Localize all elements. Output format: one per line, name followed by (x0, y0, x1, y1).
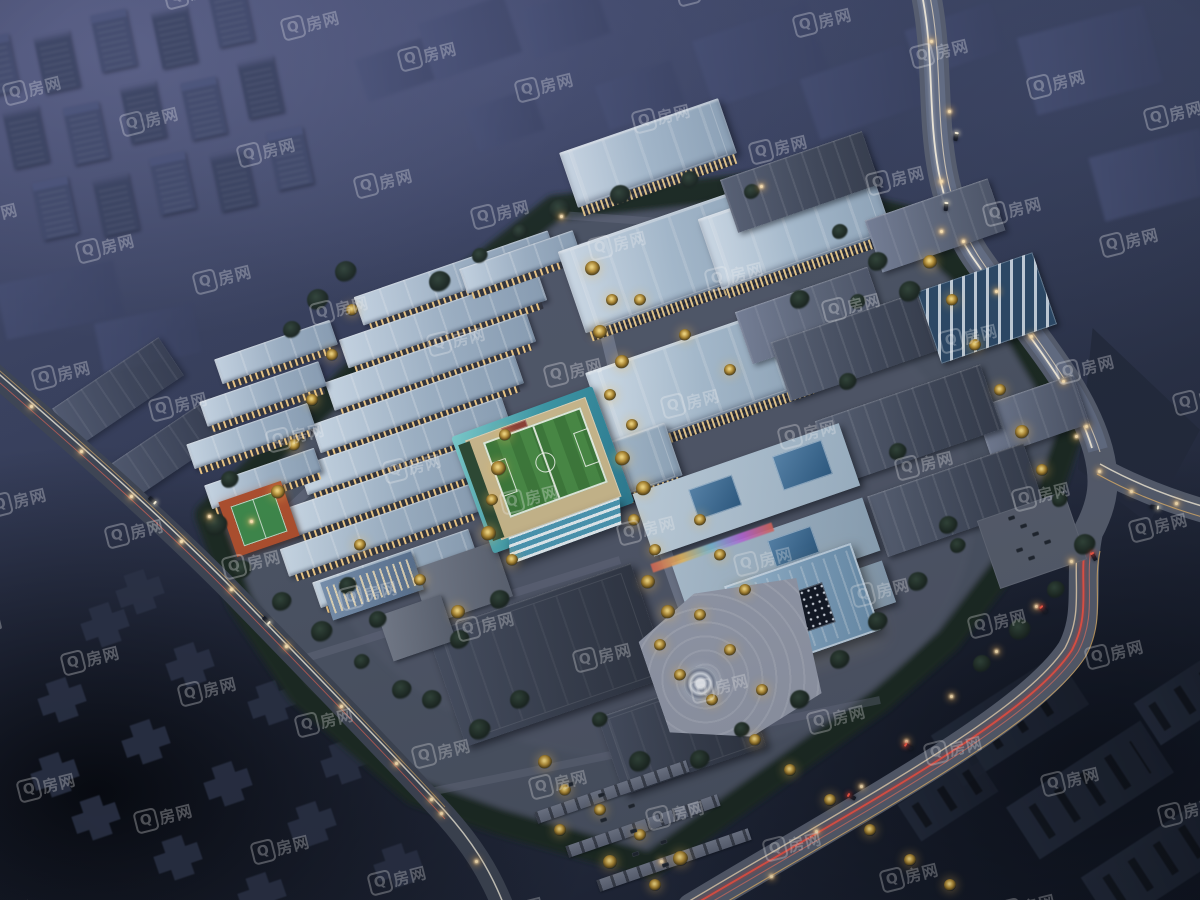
watermark-text: 房网 (961, 317, 1000, 349)
watermark-text: 房网 (332, 289, 371, 321)
watermark-text: 房网 (1180, 791, 1200, 823)
watermark-text: 房网 (902, 856, 941, 888)
watermark-text: 房网 (917, 444, 956, 476)
watermark-text: 房网 (1019, 887, 1058, 900)
watermark: Q房网 (1025, 63, 1088, 101)
watermark-text: 房网 (522, 478, 561, 510)
watermark-text: 房网 (844, 286, 883, 318)
watermark-text: 房网 (10, 481, 49, 513)
watermark: Q房网 (147, 385, 210, 423)
watermark: Q房网 (864, 159, 927, 197)
watermark-text: 房网 (54, 354, 93, 386)
watermark: Q房网 (220, 543, 283, 581)
watermark-logo-icon: Q (1171, 388, 1199, 416)
watermark-logo-icon: Q (688, 676, 716, 704)
watermark: Q房网 (59, 639, 122, 677)
watermark-text: 房网 (595, 636, 634, 668)
watermark-logo-icon: Q (761, 834, 789, 862)
watermark-text: 房网 (478, 605, 517, 637)
watermark: Q房网 (937, 317, 1000, 355)
watermark: Q房网 (352, 162, 415, 200)
watermark-text: 房网 (303, 4, 342, 36)
watermark: Q房网 (688, 667, 751, 705)
watermark-text: 房网 (186, 0, 225, 5)
watermark-logo-icon: Q (776, 422, 804, 450)
watermark: Q房网 (571, 636, 634, 674)
watermark: Q房网 (586, 224, 649, 262)
watermark-logo-icon: Q (1127, 515, 1155, 543)
watermark-text: 房网 (668, 794, 707, 826)
watermark: Q房网 (1171, 379, 1200, 417)
watermark-text: 房网 (25, 69, 64, 101)
watermark-logo-icon: Q (1054, 357, 1082, 385)
watermark-text: 房网 (39, 766, 78, 798)
watermark: Q房网 (469, 193, 532, 231)
watermark-logo-icon: Q (454, 614, 482, 642)
watermark-logo-icon: Q (1098, 230, 1126, 258)
watermark: Q房网 (1054, 348, 1117, 386)
watermark: Q房网 (249, 828, 312, 866)
watermark-text: 房网 (1122, 221, 1161, 253)
watermark-logo-icon: Q (469, 202, 497, 230)
watermark-text: 房网 (127, 512, 166, 544)
watermark: Q房网 (761, 825, 824, 863)
watermark-text: 房网 (1078, 348, 1117, 380)
watermark-logo-icon: Q (74, 236, 102, 264)
watermark-logo-icon: Q (981, 199, 1009, 227)
watermark-logo-icon: Q (864, 168, 892, 196)
watermark: Q房网 (674, 0, 737, 8)
watermark-text: 房网 (727, 255, 766, 287)
watermark-logo-icon: Q (220, 552, 248, 580)
watermark: Q房网 (893, 444, 956, 482)
watermark-logo-icon: Q (176, 679, 204, 707)
watermark-logo-icon: Q (805, 707, 833, 735)
watermark-text: 房网 (785, 825, 824, 857)
watermark-text: 房网 (259, 131, 298, 163)
watermark-logo-icon: Q (191, 267, 219, 295)
watermark: Q房网 (0, 608, 5, 646)
watermark: Q房网 (644, 794, 707, 832)
watermark: Q房网 (15, 766, 78, 804)
watermark-text: 房网 (683, 382, 722, 414)
watermark-logo-icon: Q (162, 0, 190, 10)
watermark-logo-icon: Q (878, 865, 906, 893)
watermark-logo-icon: Q (586, 233, 614, 261)
watermark-logo-icon: Q (1039, 769, 1067, 797)
watermark: Q房网 (1156, 791, 1200, 829)
watermark-text: 房网 (1034, 475, 1073, 507)
watermark-logo-icon: Q (30, 363, 58, 391)
watermark: Q房网 (849, 571, 912, 609)
watermark: Q房网 (542, 351, 605, 389)
watermark: Q房网 (381, 447, 444, 485)
watermark: Q房网 (922, 729, 985, 767)
watermark-logo-icon: Q (103, 521, 131, 549)
watermark: Q房网 (1098, 221, 1161, 259)
watermark: Q房网 (118, 100, 181, 138)
watermark: Q房网 (732, 540, 795, 578)
watermark-logo-icon: Q (337, 583, 365, 611)
watermark-text: 房网 (273, 828, 312, 860)
watermark-logo-icon: Q (132, 806, 160, 834)
watermark-text: 房网 (771, 128, 810, 160)
watermark: Q房网 (74, 227, 137, 265)
watermark-text: 房网 (0, 196, 20, 228)
watermark-logo-icon: Q (732, 549, 760, 577)
watermark: Q房网 (805, 698, 868, 736)
watermark-text: 房网 (932, 32, 971, 64)
watermark-logo-icon: Q (571, 645, 599, 673)
watermark-logo-icon: Q (937, 326, 965, 354)
watermark-layer: Q房网Q房网Q房网Q房网Q房网Q房网Q房网Q房网Q房网Q房网Q房网Q房网Q房网Q… (0, 0, 1200, 900)
watermark: Q房网 (703, 255, 766, 293)
watermark-logo-icon: Q (15, 775, 43, 803)
watermark-logo-icon: Q (849, 580, 877, 608)
watermark-text: 房网 (698, 0, 737, 2)
watermark-logo-icon: Q (1, 78, 29, 106)
watermark: Q房网 (1127, 506, 1190, 544)
watermark: Q房网 (0, 893, 34, 900)
watermark-logo-icon: Q (922, 738, 950, 766)
watermark: Q房网 (981, 190, 1044, 228)
watermark: Q房网 (0, 481, 49, 519)
watermark-logo-icon: Q (1025, 72, 1053, 100)
watermark-text: 房网 (537, 66, 576, 98)
aerial-night-rendering: Q房网Q房网Q房网Q房网Q房网Q房网Q房网Q房网Q房网Q房网Q房网Q房网Q房网Q… (0, 0, 1200, 900)
watermark-logo-icon: Q (1010, 484, 1038, 512)
watermark-logo-icon: Q (264, 425, 292, 453)
watermark-text: 房网 (946, 729, 985, 761)
watermark-text: 房网 (376, 162, 415, 194)
watermark: Q房网 (425, 320, 488, 358)
watermark-text: 房网 (244, 543, 283, 575)
watermark-text: 房网 (800, 413, 839, 445)
watermark-text: 房网 (712, 667, 751, 699)
watermark-logo-icon: Q (352, 171, 380, 199)
watermark: Q房网 (308, 289, 371, 327)
watermark-text: 房网 (171, 385, 210, 417)
watermark-text: 房网 (142, 100, 181, 132)
watermark: Q房网 (176, 670, 239, 708)
watermark-logo-icon: Q (293, 710, 321, 738)
watermark-logo-icon: Q (747, 137, 775, 165)
watermark-text: 房网 (317, 701, 356, 733)
watermark: Q房网 (776, 413, 839, 451)
watermark-logo-icon: Q (703, 264, 731, 292)
watermark-text: 房网 (551, 763, 590, 795)
watermark-logo-icon: Q (630, 106, 658, 134)
watermark: Q房网 (615, 509, 678, 547)
watermark: Q房网 (30, 354, 93, 392)
watermark-text: 房网 (361, 574, 400, 606)
watermark: Q房网 (995, 887, 1058, 900)
watermark-logo-icon: Q (674, 0, 702, 7)
watermark-text: 房网 (83, 639, 122, 671)
watermark-text: 房网 (405, 447, 444, 479)
watermark-text: 房网 (0, 608, 5, 640)
watermark-text: 房网 (990, 602, 1029, 634)
watermark: Q房网 (279, 4, 342, 42)
watermark: Q房网 (1142, 94, 1200, 132)
watermark-logo-icon: Q (279, 13, 307, 41)
watermark-logo-icon: Q (381, 456, 409, 484)
watermark-text: 房网 (639, 509, 678, 541)
watermark-text: 房网 (1107, 633, 1146, 665)
watermark-text: 房网 (200, 670, 239, 702)
watermark-text: 房网 (1151, 506, 1190, 538)
watermark-text: 房网 (420, 35, 459, 67)
watermark: Q房网 (396, 35, 459, 73)
watermark-text: 房网 (288, 416, 327, 448)
watermark-logo-icon: Q (791, 10, 819, 38)
watermark-text: 房网 (815, 1, 854, 33)
watermark-text: 房网 (756, 540, 795, 572)
watermark-text: 房网 (449, 320, 488, 352)
watermark-logo-icon: Q (513, 75, 541, 103)
watermark: Q房网 (366, 859, 429, 897)
watermark-logo-icon: Q (235, 140, 263, 168)
watermark-text: 房网 (654, 97, 693, 129)
watermark-logo-icon: Q (908, 41, 936, 69)
watermark-text: 房网 (0, 893, 34, 900)
watermark-logo-icon: Q (644, 803, 672, 831)
watermark: Q房网 (0, 196, 20, 234)
watermark: Q房网 (337, 574, 400, 612)
watermark: Q房网 (483, 890, 546, 900)
watermark-text: 房网 (434, 732, 473, 764)
watermark-logo-icon: Q (425, 329, 453, 357)
watermark-logo-icon: Q (542, 360, 570, 388)
watermark-logo-icon: Q (366, 868, 394, 896)
watermark-logo-icon: Q (1156, 800, 1184, 828)
watermark-text: 房网 (888, 159, 927, 191)
watermark-logo-icon: Q (615, 518, 643, 546)
watermark: Q房网 (1039, 760, 1102, 798)
watermark: Q房网 (630, 97, 693, 135)
watermark: Q房网 (1083, 633, 1146, 671)
watermark: Q房网 (1010, 475, 1073, 513)
watermark-text: 房网 (493, 193, 532, 225)
watermark-text: 房网 (507, 890, 546, 900)
watermark-logo-icon: Q (59, 648, 87, 676)
watermark-text: 房网 (1005, 190, 1044, 222)
watermark-logo-icon: Q (527, 772, 555, 800)
watermark-text: 房网 (98, 227, 137, 259)
watermark-text: 房网 (156, 797, 195, 829)
watermark: Q房网 (908, 32, 971, 70)
watermark-logo-icon: Q (147, 394, 175, 422)
watermark-logo-icon: Q (396, 44, 424, 72)
watermark: Q房网 (293, 701, 356, 739)
watermark: Q房网 (410, 732, 473, 770)
watermark: Q房网 (264, 416, 327, 454)
watermark-logo-icon: Q (820, 295, 848, 323)
watermark-text: 房网 (215, 258, 254, 290)
watermark-logo-icon: Q (966, 611, 994, 639)
watermark: Q房网 (235, 131, 298, 169)
watermark-logo-icon: Q (249, 837, 277, 865)
watermark: Q房网 (1, 69, 64, 107)
watermark: Q房网 (820, 286, 883, 324)
watermark: Q房网 (791, 1, 854, 39)
watermark: Q房网 (659, 382, 722, 420)
watermark-text: 房网 (610, 224, 649, 256)
watermark-logo-icon: Q (893, 453, 921, 481)
watermark-logo-icon: Q (659, 391, 687, 419)
watermark-logo-icon: Q (1142, 103, 1170, 131)
watermark: Q房网 (132, 797, 195, 835)
watermark: Q房网 (747, 128, 810, 166)
watermark-logo-icon: Q (1083, 642, 1111, 670)
watermark: Q房网 (103, 512, 166, 550)
watermark-logo-icon: Q (410, 741, 438, 769)
watermark-text: 房网 (390, 859, 429, 891)
watermark-logo-icon: Q (118, 109, 146, 137)
watermark-text: 房网 (566, 351, 605, 383)
watermark: Q房网 (966, 602, 1029, 640)
watermark-logo-icon: Q (308, 298, 336, 326)
watermark-text: 房网 (1049, 63, 1088, 95)
watermark-text: 房网 (1166, 94, 1200, 126)
watermark-text: 房网 (829, 698, 868, 730)
watermark: Q房网 (527, 763, 590, 801)
watermark: Q房网 (162, 0, 225, 11)
watermark: Q房网 (878, 856, 941, 894)
watermark-text: 房网 (1063, 760, 1102, 792)
watermark: Q房网 (191, 258, 254, 296)
watermark: Q房网 (498, 478, 561, 516)
watermark-text: 房网 (873, 571, 912, 603)
watermark: Q房网 (454, 605, 517, 643)
watermark: Q房网 (513, 66, 576, 104)
watermark-logo-icon: Q (498, 487, 526, 515)
